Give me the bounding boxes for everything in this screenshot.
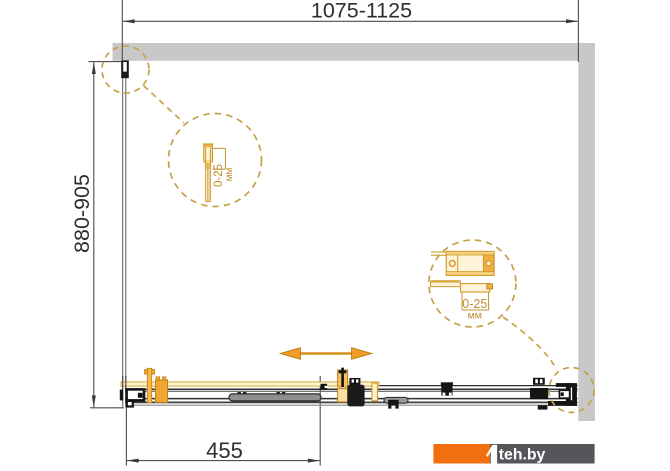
svg-text:1075-1125: 1075-1125 — [311, 0, 412, 22]
svg-text:455: 455 — [206, 438, 243, 463]
svg-text:мм: мм — [224, 168, 235, 182]
svg-text:880-905: 880-905 — [70, 174, 94, 253]
svg-text:мм: мм — [468, 310, 482, 322]
svg-text:teh.by: teh.by — [499, 447, 546, 464]
